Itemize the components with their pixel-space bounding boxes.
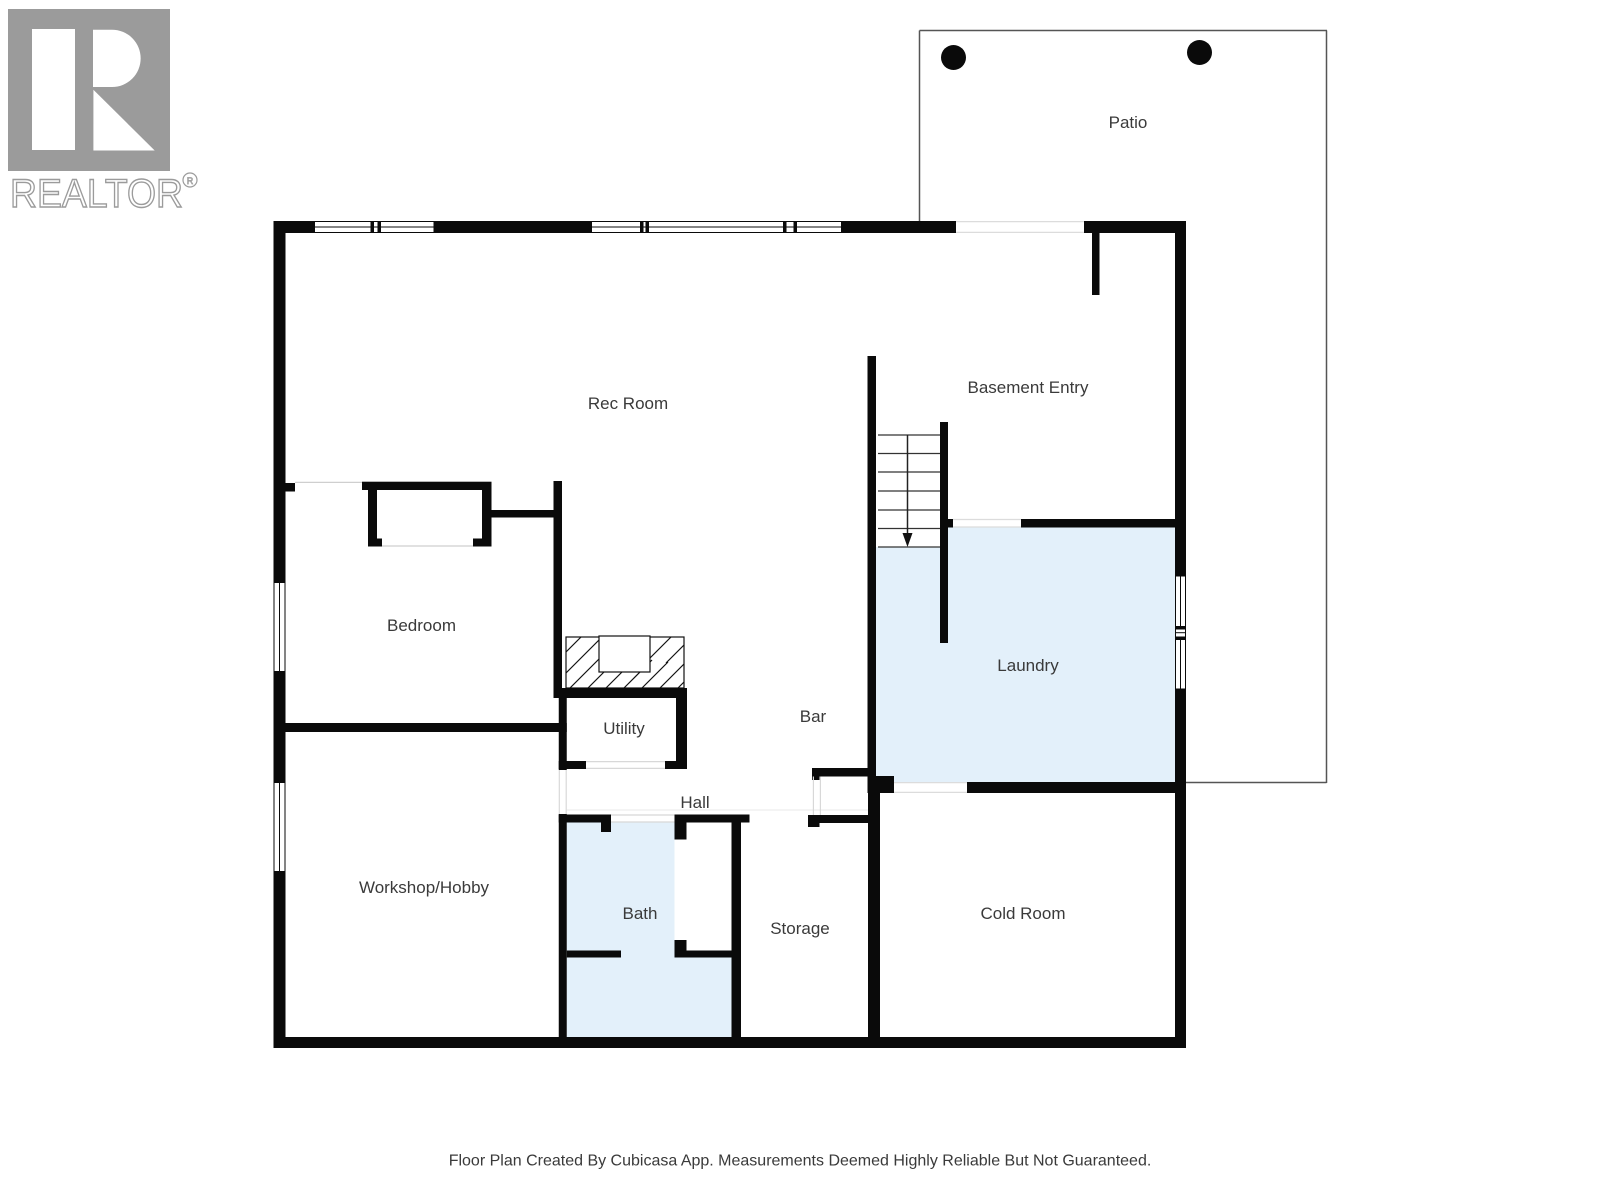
svg-text:REALTOR: REALTOR [10,172,183,216]
svg-text:Storage: Storage [770,919,830,938]
svg-text:Bedroom: Bedroom [387,616,456,635]
svg-text:Laundry: Laundry [997,656,1059,675]
svg-text:Cold Room: Cold Room [980,904,1065,923]
svg-text:Utility: Utility [603,719,645,738]
svg-text:Floor Plan Created By Cubicasa: Floor Plan Created By Cubicasa App. Meas… [449,1153,1152,1170]
svg-text:Patio: Patio [1109,113,1148,132]
svg-text:Rec Room: Rec Room [588,394,668,413]
svg-text:Basement Entry: Basement Entry [968,378,1089,397]
svg-text:R: R [187,176,194,186]
svg-text:Workshop/Hobby: Workshop/Hobby [359,878,490,897]
svg-text:Bath: Bath [623,904,658,923]
svg-text:Bar: Bar [800,707,827,726]
svg-text:Hall: Hall [680,793,709,812]
